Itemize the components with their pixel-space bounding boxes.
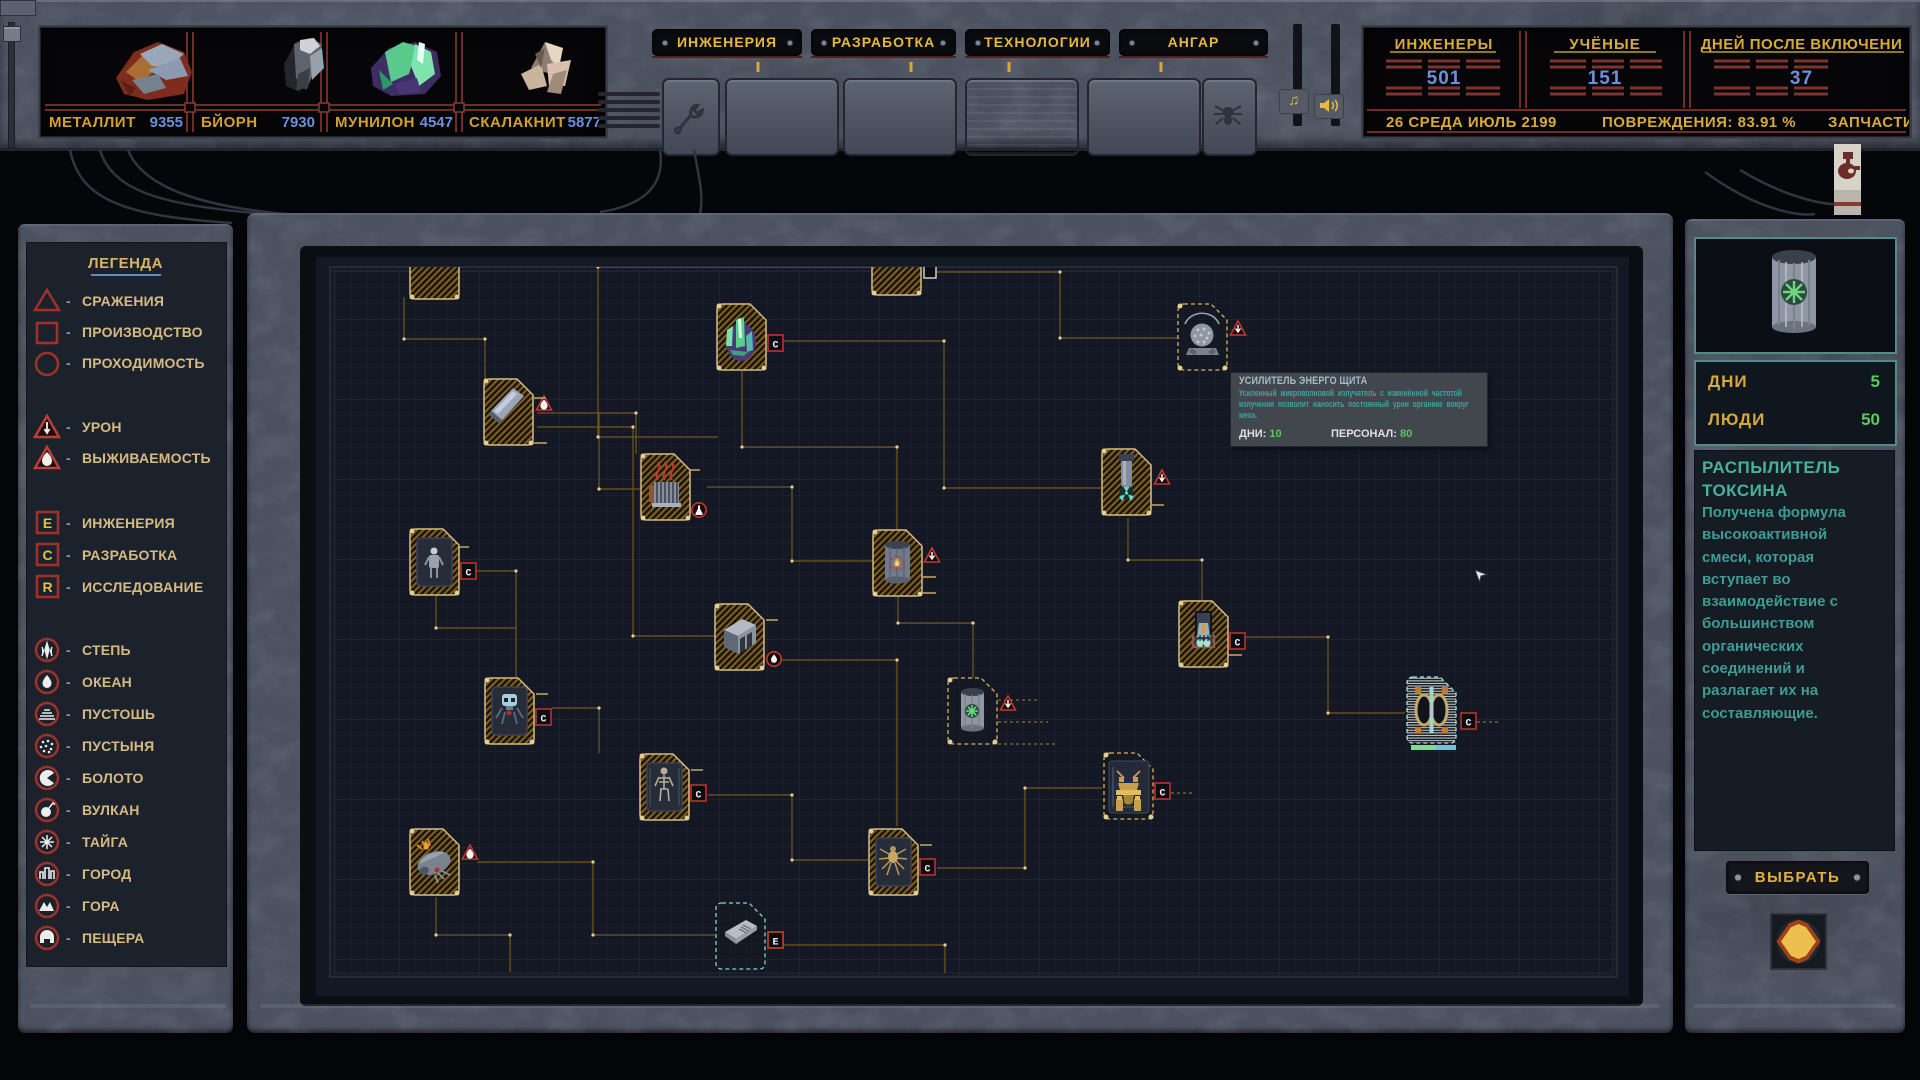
svg-text:E: E — [772, 938, 778, 949]
